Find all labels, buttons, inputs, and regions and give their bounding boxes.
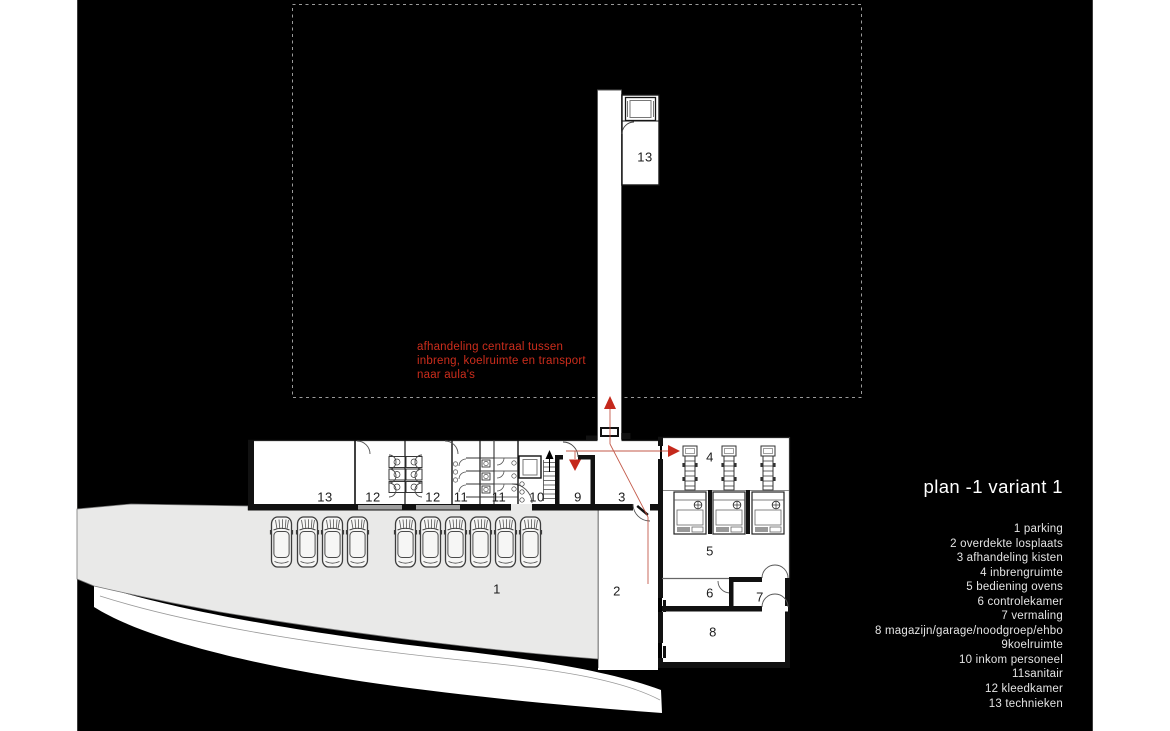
parked-car — [346, 517, 369, 567]
legend-item: 3 afhandeling kisten — [875, 551, 1063, 566]
parked-car — [296, 517, 319, 567]
plan-title: plan -1 variant 1 — [924, 476, 1063, 498]
annotation-line: inbreng, koelruimte en transport — [417, 354, 586, 368]
legend-item: 7 vermaling — [875, 609, 1063, 624]
parked-car — [469, 517, 492, 567]
left-wing — [248, 440, 660, 521]
parked-car — [394, 517, 417, 567]
parked-car — [519, 517, 542, 567]
cars-group — [270, 517, 542, 567]
legend: 1 parking2 overdekte losplaats3 afhandel… — [875, 522, 1063, 711]
parked-car — [321, 517, 344, 567]
parked-car — [270, 517, 293, 567]
legend-item: 6 controlekamer — [875, 595, 1063, 610]
legend-item: 1 parking — [875, 522, 1063, 537]
legend-item: 8 magazijn/garage/noodgroep/ehbo — [875, 624, 1063, 639]
room-2-losplaats — [598, 507, 658, 670]
legend-item: 5 bediening ovens — [875, 580, 1063, 595]
annotation-note: afhandeling centraal tusseninbreng, koel… — [417, 340, 586, 382]
annotation-line: naar aula's — [417, 368, 586, 382]
legend-item: 13 technieken — [875, 697, 1063, 712]
parked-car — [419, 517, 442, 567]
room-13-top — [622, 95, 659, 185]
legend-item: 11sanitair — [875, 667, 1063, 682]
annotation-line: afhandeling centraal tussen — [417, 340, 586, 354]
parked-car — [494, 517, 517, 567]
legend-item: 9koelruimte — [875, 638, 1063, 653]
right-wing — [658, 437, 790, 668]
legend-item: 2 overdekte losplaats — [875, 537, 1063, 552]
site-boundary-dashes — [293, 5, 862, 398]
presentation-page: 13131212111110934567821 afhandeling cent… — [0, 0, 1170, 731]
legend-item: 10 inkom personeel — [875, 653, 1063, 668]
legend-item: 12 kleedkamer — [875, 682, 1063, 697]
parked-car — [444, 517, 467, 567]
legend-item: 4 inbrengruimte — [875, 566, 1063, 581]
